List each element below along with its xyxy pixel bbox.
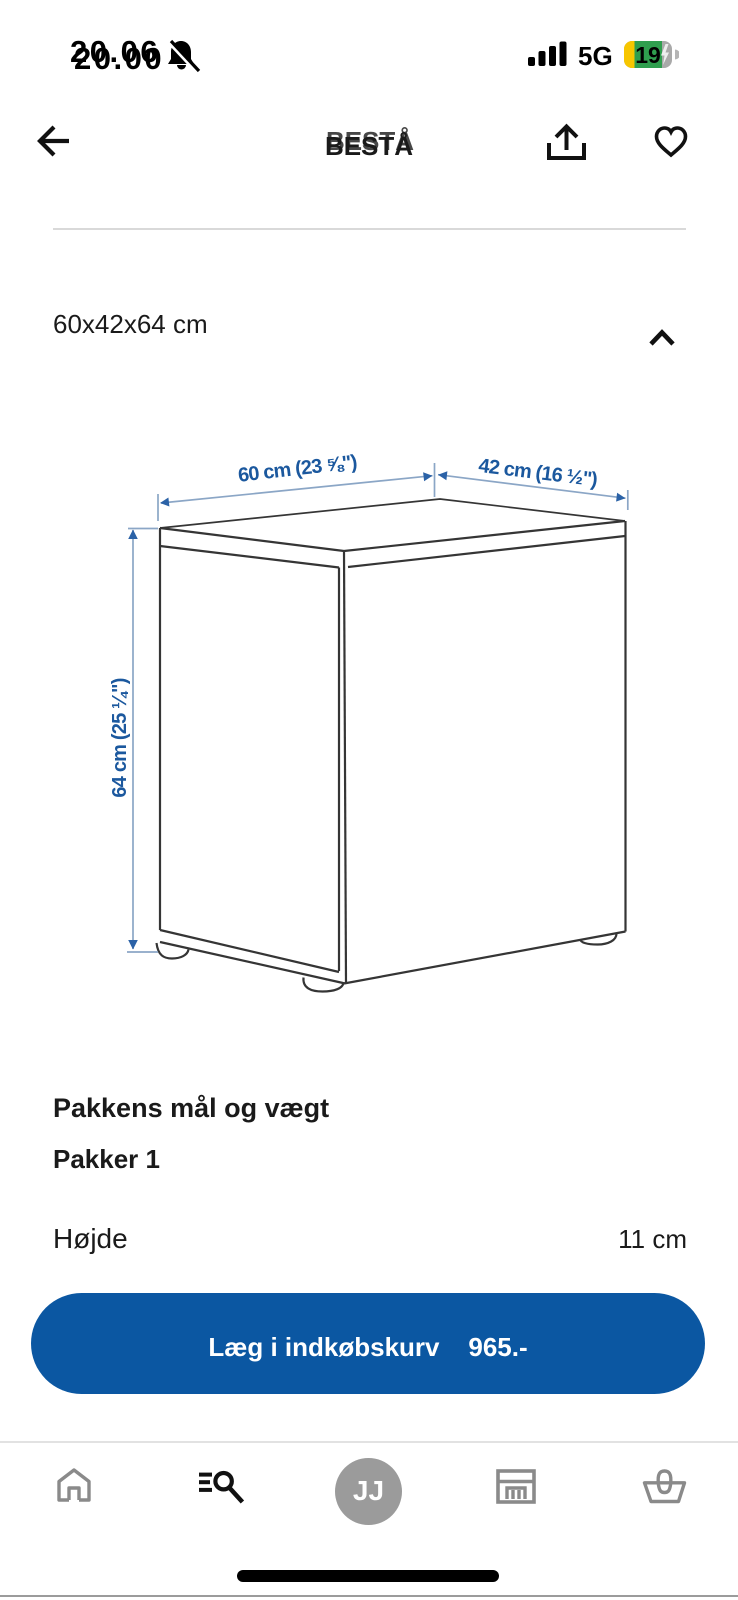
svg-text:42 cm (16 ½"): 42 cm (16 ½")	[477, 455, 598, 491]
svg-text:19: 19	[635, 42, 661, 68]
svg-text:60 cm (23 ⅝"): 60 cm (23 ⅝")	[237, 451, 358, 487]
svg-text:64 cm (25 ¼"): 64 cm (25 ¼")	[109, 678, 131, 797]
